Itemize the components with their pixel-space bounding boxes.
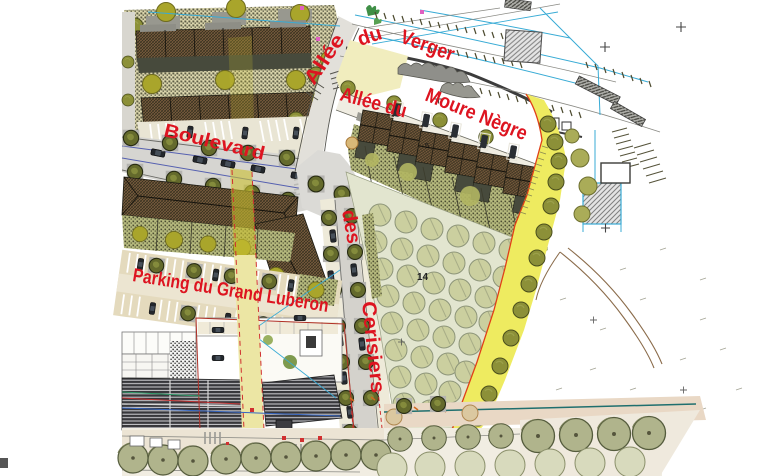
svg-text:14: 14 <box>417 272 429 283</box>
svg-text:5: 5 <box>425 143 429 150</box>
